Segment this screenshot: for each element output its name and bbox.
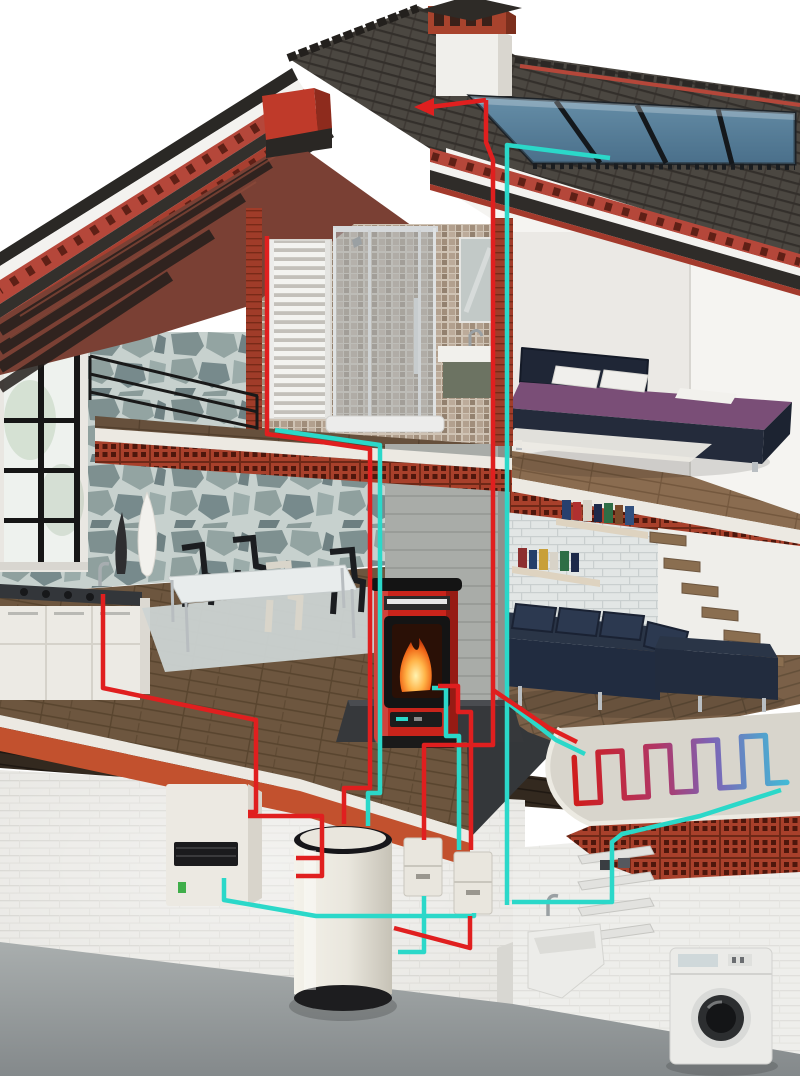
tank-lid bbox=[300, 827, 386, 849]
house-cutaway-illustration bbox=[0, 0, 800, 1076]
pump-station-1 bbox=[404, 838, 442, 896]
heating-slab bbox=[548, 712, 800, 824]
boiler-grille bbox=[174, 842, 238, 866]
shower-cabin bbox=[326, 226, 444, 432]
pump-station-2 bbox=[454, 852, 492, 914]
shower-tray bbox=[326, 416, 444, 432]
scene-svg bbox=[0, 0, 800, 1076]
stove-top bbox=[370, 578, 462, 591]
washing-machine bbox=[666, 948, 778, 1076]
sofa-cushion bbox=[600, 612, 644, 640]
window-sill bbox=[0, 562, 88, 570]
sofa-cushion bbox=[556, 608, 600, 636]
boiler-led bbox=[178, 882, 186, 893]
sofa-cushion bbox=[512, 604, 556, 632]
kitchen-cabinets bbox=[0, 606, 140, 700]
wall-brick-edge-right bbox=[495, 218, 513, 446]
shower-handle bbox=[414, 298, 418, 374]
gable-beam bbox=[262, 88, 332, 158]
condensing-boiler bbox=[166, 784, 262, 906]
attic-bathroom bbox=[246, 208, 512, 458]
hot-water-tank bbox=[289, 826, 397, 1021]
washer-display bbox=[678, 954, 718, 967]
towel-radiator bbox=[269, 240, 331, 418]
